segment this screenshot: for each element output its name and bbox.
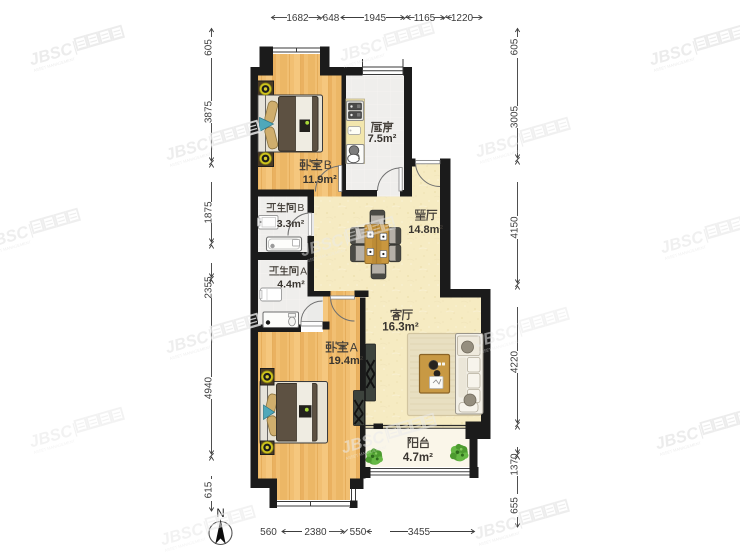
svg-text:550: 550 — [350, 527, 367, 538]
svg-text:11.9m²: 11.9m² — [303, 174, 338, 186]
svg-text:615: 615 — [204, 481, 215, 498]
svg-text:4150: 4150 — [510, 216, 521, 239]
svg-text:560: 560 — [260, 527, 277, 538]
svg-text:1875: 1875 — [204, 201, 215, 224]
svg-text:3455: 3455 — [408, 527, 431, 538]
svg-text:B: B — [297, 202, 304, 214]
svg-text:655: 655 — [510, 497, 521, 514]
svg-text:A: A — [350, 340, 358, 354]
svg-text:A: A — [300, 265, 307, 277]
svg-text:1370: 1370 — [510, 453, 521, 476]
svg-text:7.5m²: 7.5m² — [368, 133, 397, 145]
svg-text:4.7m²: 4.7m² — [403, 452, 433, 464]
svg-text:19.4m²: 19.4m² — [329, 355, 364, 367]
svg-text:2380: 2380 — [304, 527, 327, 538]
svg-text:4940: 4940 — [204, 376, 215, 399]
svg-text:648: 648 — [323, 13, 340, 24]
svg-text:1945: 1945 — [364, 13, 387, 24]
svg-text:605: 605 — [204, 39, 215, 56]
svg-text:14.8m²: 14.8m² — [408, 224, 443, 236]
svg-text:4220: 4220 — [510, 350, 521, 373]
svg-text:1165: 1165 — [414, 13, 436, 24]
svg-text:1220: 1220 — [451, 13, 474, 24]
svg-text:3875: 3875 — [204, 100, 215, 123]
svg-text:3.3m²: 3.3m² — [277, 218, 305, 230]
svg-text:605: 605 — [510, 38, 521, 55]
svg-text:3005: 3005 — [510, 105, 521, 128]
svg-text:16.3m²: 16.3m² — [382, 322, 419, 334]
svg-text:1682: 1682 — [286, 13, 309, 24]
svg-text:2355: 2355 — [204, 276, 215, 299]
svg-text:4.4m²: 4.4m² — [277, 279, 305, 291]
svg-text:B: B — [324, 158, 332, 172]
